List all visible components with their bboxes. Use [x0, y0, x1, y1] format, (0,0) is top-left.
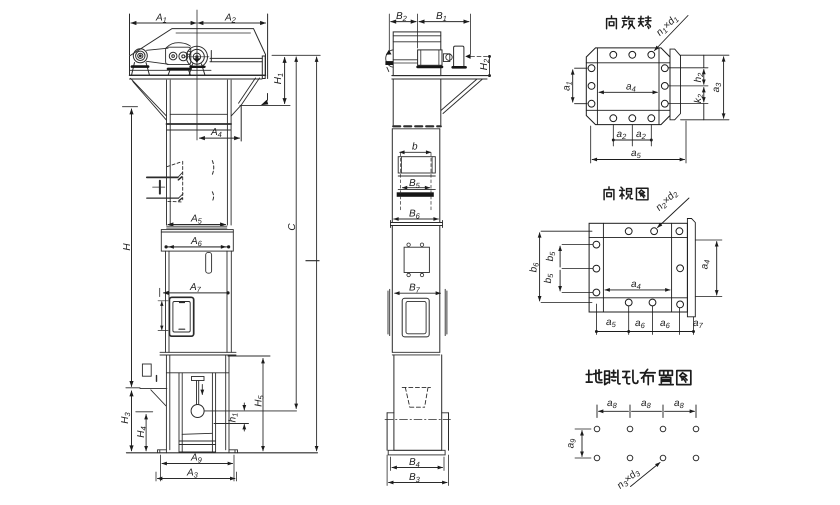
svg-text:b: b — [412, 142, 418, 153]
svg-text:a6: a6 — [635, 318, 646, 330]
svg-text:a2: a2 — [636, 129, 647, 141]
svg-text:a8: a8 — [641, 398, 652, 410]
svg-text:a2: a2 — [617, 129, 628, 141]
svg-text:a8: a8 — [674, 398, 685, 410]
svg-text:B2: B2 — [396, 11, 408, 23]
svg-text:a1: a1 — [562, 81, 574, 91]
svg-text:a7: a7 — [693, 318, 704, 330]
svg-text:b5: b5 — [545, 251, 557, 262]
svg-text:H3: H3 — [120, 411, 132, 423]
svg-text:b5: b5 — [543, 273, 555, 284]
svg-text:H5: H5 — [254, 394, 266, 406]
svg-text:B4: B4 — [409, 457, 420, 469]
svg-text:B3: B3 — [409, 472, 421, 484]
svg-text:B5: B5 — [409, 178, 421, 190]
svg-text:a5: a5 — [631, 148, 642, 160]
svg-text:B6: B6 — [409, 209, 421, 221]
svg-text:n3×d3: n3×d3 — [615, 466, 643, 492]
svg-text:a4: a4 — [700, 260, 712, 270]
svg-text:H1: H1 — [273, 73, 285, 84]
svg-text:n1×d1: n1×d1 — [654, 13, 681, 39]
svg-text:A2: A2 — [224, 13, 237, 25]
svg-text:H2: H2 — [479, 58, 491, 70]
svg-text:a4: a4 — [631, 279, 641, 291]
svg-text:n2×d2: n2×d2 — [654, 187, 681, 214]
svg-text:C: C — [287, 223, 298, 231]
svg-text:a8: a8 — [607, 398, 618, 410]
svg-text:a5: a5 — [606, 317, 617, 329]
svg-text:A9: A9 — [190, 453, 203, 465]
svg-text:H4: H4 — [136, 426, 148, 437]
svg-text:a6: a6 — [660, 318, 671, 330]
svg-text:k2: k2 — [693, 93, 705, 103]
svg-text:A7: A7 — [189, 282, 202, 294]
svg-text:a9: a9 — [566, 438, 578, 449]
svg-text:A6: A6 — [190, 236, 203, 248]
svg-text:A3: A3 — [186, 468, 199, 480]
svg-text:A4: A4 — [210, 127, 222, 139]
svg-text:a3: a3 — [711, 82, 723, 93]
svg-text:H: H — [122, 243, 133, 251]
svg-text:A5: A5 — [190, 214, 203, 226]
svg-text:a4: a4 — [626, 82, 636, 94]
svg-text:h2: h2 — [693, 72, 705, 83]
svg-text:B1: B1 — [436, 11, 447, 23]
svg-text:b6: b6 — [529, 262, 541, 273]
svg-text:B7: B7 — [409, 283, 421, 295]
svg-text:A1: A1 — [155, 13, 167, 25]
